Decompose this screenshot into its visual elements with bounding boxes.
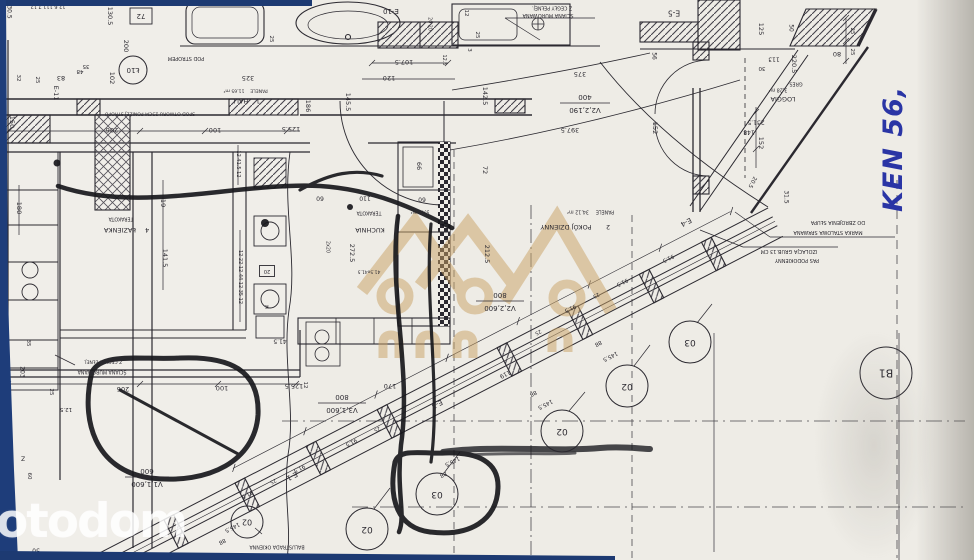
dim-label: 11,65 m² [223,88,244,94]
dim-label: 141.5 [161,249,169,268]
dim-label: 170 [384,382,396,390]
dim-label: 206 [106,126,118,134]
text-note: POD STROPEM [168,55,205,61]
element-tag-label: E-5 [668,9,680,18]
dim-label: 32 [15,75,21,82]
floor-plan-photo: 30.512 6 111 7 12130.520010283E-11354825… [0,0,974,560]
text-note: LOGGIA [770,95,795,103]
text-note: PANELE [596,209,614,215]
text-note: POKÓJ DZIENNY [540,223,591,232]
dim-label: 41.5x41.5 [358,269,381,275]
dim-label: 60 [418,196,426,203]
text-note: Z CEGŁY PEŁNEJ. [84,359,123,365]
text-note: PAS PODOKIENNY [774,257,819,263]
window-mark-top: 800 [493,291,506,299]
dim-label: 12 [302,382,308,389]
dim-label: 56 [651,52,658,60]
window-mark-bottom: V2,2,190 [569,106,601,114]
dim-label: 50 [788,24,795,32]
dim-label: 12 41.5 12 [235,150,241,177]
dim-label: 100 [209,126,221,134]
dim-label: 5,44 m² [411,209,430,215]
circled-marker-label: 02 [361,524,372,534]
text-note: IZOLACJA GRUB.13 CM [761,248,818,254]
dim-label: 4 [145,226,149,234]
dim-label: 12 [463,10,469,17]
text-note: BALUSTRADA OKIENNA [249,544,305,550]
dim-label: 119 [159,195,167,207]
dim-label: 397.5 [561,126,580,134]
element-tag-label: E-11 [52,86,60,101]
circled-marker-label: 03 [684,337,695,347]
dim-label: 231.5 [747,119,764,126]
dim-label: 34,12 m² [567,209,589,215]
dim-label: 186 [304,100,312,112]
dim-label: 30.5 [6,5,13,19]
dim-label: 272.5 [348,244,356,263]
dim-label: 148 [743,129,755,136]
dim-label: 206 [117,385,129,393]
dim-label: 25 [849,28,855,35]
text-note: Z CEGŁY PEŁNEJ. [532,5,572,11]
boxed-label-text: 20 [264,268,270,274]
text-note: ŁAZIENKA [103,226,137,234]
dim-label: K [265,303,269,309]
dim-label: 12.5 [59,406,72,412]
text-note: PANELE [250,88,268,94]
text-note: TERAKOTA [356,210,383,216]
dim-label: 220.5 [790,55,798,74]
dim-label: 48 [76,68,83,74]
photo-shadow-right [916,0,974,560]
circled-marker-label: 02 [242,518,252,527]
dim-label: 107.5 [395,58,414,66]
dim-label: 125 [757,23,765,35]
dim-label: 142.5 [481,87,489,106]
dim-label: 12 22 12 44 12 35 12 [237,250,243,304]
dim-label: 102 [108,72,116,84]
circled-marker-label: 03 [431,489,442,499]
dim-label: 3 [394,225,398,233]
dim-label: 145.5 [344,93,352,112]
window-mark-bottom: V3,1,600 [326,406,358,414]
text-note: ŚCIANA MUROWANA [77,369,127,376]
text-note: SPOD OTWORU 25CM PONIŻEJ STROPU [105,111,195,118]
dim-label: 2 [606,223,610,231]
dim-label: 25 [34,77,40,84]
window-mark-bottom: V2,2,600 [484,304,516,312]
dim-label: 30 [758,65,765,71]
dim-label: 31.5 [783,190,790,204]
dim-label: 1 [256,97,260,105]
window-mark-top: 800 [335,393,348,401]
dim-label: 152 [651,122,659,134]
dim-label: 2x20 [325,241,331,253]
circled-marker-label: 02 [621,381,632,391]
dim-label: 100 [216,384,228,392]
window-E-10 [378,22,458,48]
circled-marker-label: 02 [556,426,567,436]
dim-label: 212.5 [483,245,491,264]
dim-label: 125.5 [285,382,304,390]
dim-label: 80 [833,50,841,58]
dim-label: 12.5 [441,54,447,65]
window-mark-top: 600 [140,467,153,475]
window-mark-bottom: V1,1,600 [131,480,163,488]
dim-label: 25 [474,32,480,39]
dim-label: 120 [383,74,395,82]
text-note: GRES [789,81,802,87]
dim-label: 125.5 [282,125,301,133]
dim-label: 60 [26,473,32,480]
dim-label: 25 [849,49,855,56]
text-note: ŚCIANA MUROWANA [522,12,574,19]
circled-marker-label: Ł10 [127,66,141,74]
dim-label: 152 [757,137,765,149]
dim-label: 66 [415,162,423,170]
dim-label: 375 [574,70,586,78]
dim-label: 60 [316,195,324,202]
dim-label: Z [21,455,25,462]
dim-label: 110 [359,195,371,202]
dim-label: 130.5 [106,7,114,26]
text-note: KUCHNIA [355,226,385,234]
dim-label: 25 [268,36,274,43]
dim-label: 41.5 [273,338,287,345]
text-note: MARKA STALOWA SPAWANA [793,229,863,235]
text-note: TERAKOTA [108,216,135,222]
dim-label: 325 [242,74,254,82]
dim-label: 25 [48,389,54,396]
window-mark-top: 400 [578,93,591,101]
text-note: DO ZBROJENIA SŁUPA [810,219,865,225]
dim-label: 203 [19,366,26,378]
element-tag-label: E-10 [383,7,399,15]
boxed-label-text: 72 [137,12,146,20]
dim-label: 72 [481,166,489,174]
text-note: HALL [231,97,248,105]
dim-label: 180 [15,202,23,214]
dim-label: 20 20 [427,17,433,31]
dim-label: 83 [57,74,65,82]
dim-label: 200 [122,40,130,52]
dim-label: 3,28 m² [769,87,788,93]
dim-label: 35 [25,340,31,347]
dim-label: 3 [466,48,472,52]
dim-label: 113 [768,56,780,63]
dim-label: 150 [8,116,16,128]
